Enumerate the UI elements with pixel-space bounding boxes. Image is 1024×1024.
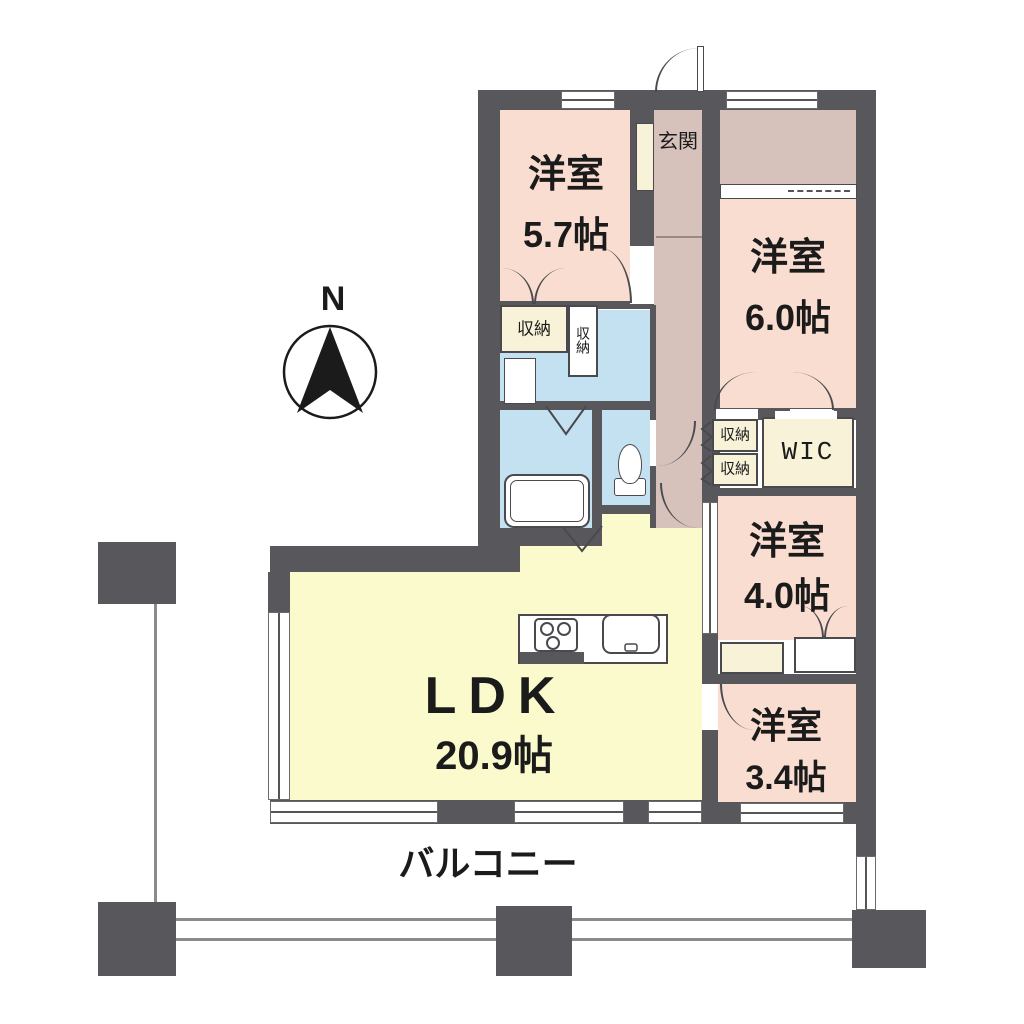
- label-genkan: 玄関: [658, 132, 698, 152]
- closet-bedroom40: [794, 637, 856, 673]
- kitchen-counter-dark: [520, 652, 584, 664]
- label-storage-mid-a: 収納: [720, 428, 750, 443]
- wall-toilet-bottom: [600, 505, 656, 514]
- wall-ldk-top: [270, 546, 500, 572]
- window-north-bedroom57: [561, 91, 615, 109]
- compass-icon: [281, 323, 379, 421]
- balcony-pillar-middle: [496, 906, 572, 976]
- label-storage-mid-b: 収納: [720, 462, 750, 477]
- ldk-hall-notch: [600, 512, 652, 572]
- label-bedroom57-name: 洋室: [528, 156, 604, 194]
- folding-door-icon-hall: [560, 524, 604, 554]
- door-gap-bedroom34: [702, 684, 718, 730]
- entry-side-room: [720, 108, 857, 184]
- strip-pipe-space: [636, 123, 654, 191]
- window-ldk-bottom-3: [648, 801, 702, 823]
- wall-east: [856, 110, 876, 858]
- folding-door-icon-bath: [544, 404, 588, 438]
- label-bedroom34-name: 洋室: [750, 708, 822, 744]
- wall-ldk-left: [268, 572, 290, 612]
- label-bedroom40-name: 洋室: [749, 523, 825, 561]
- label-bedroom60-size: 6.0帖: [745, 300, 831, 336]
- label-storage-hall: 収納: [576, 326, 590, 354]
- vanity-sink-icon: [504, 358, 536, 404]
- hanger-pipe-dashed: [788, 190, 850, 192]
- label-storage-57: 収納: [517, 321, 551, 338]
- window-ldk-bottom-2: [514, 801, 624, 823]
- label-bedroom60-name: 洋室: [750, 239, 826, 277]
- window-ldk-left: [268, 612, 290, 800]
- window-bedroom34-bottom: [740, 803, 844, 823]
- compass-north-label: N: [321, 282, 346, 316]
- label-ldk-size: 20.9帖: [435, 736, 553, 776]
- floor-plan: N 洋室 5.7帖 玄関 洋室 6.0帖 収納 収納 収納 収納 WIC 洋室 …: [0, 0, 1024, 1024]
- toilet-bowl-icon: [618, 444, 642, 484]
- genkan-step-line: [656, 236, 702, 238]
- label-ldk-name: LDK: [425, 670, 568, 722]
- window-north-entry: [726, 91, 818, 109]
- bathtub-icon: [504, 474, 590, 528]
- door-gap-bedroom60: [716, 409, 758, 419]
- window-east-lower: [856, 856, 876, 910]
- door-gap-toilet: [650, 420, 656, 466]
- wic-opening: [775, 411, 837, 419]
- wall-closet-row-bottom: [702, 488, 857, 496]
- label-bedroom34-size: 3.4帖: [745, 761, 826, 795]
- wall-bedroom40-bottom: [718, 674, 857, 684]
- balcony-wall-block-left: [98, 542, 176, 604]
- wall-bath-corridor: [650, 305, 656, 528]
- kitchen-sink-icon: [602, 614, 660, 654]
- balcony-pillar-right: [852, 910, 926, 968]
- balcony-pillar-left: [98, 902, 176, 976]
- door-leaf-entrance: [697, 46, 704, 92]
- accordion-door-icon-b: [700, 455, 714, 486]
- sliding-door-bedroom40: [702, 502, 718, 634]
- label-bedroom40-size: 4.0帖: [744, 578, 830, 614]
- window-ldk-bottom-1: [270, 801, 438, 823]
- accordion-door-icon-a: [700, 421, 714, 452]
- stove-icon: [534, 618, 578, 652]
- label-balcony: バルコニー: [398, 846, 577, 882]
- label-bedroom57-size: 5.7帖: [523, 217, 609, 253]
- label-wic: WIC: [782, 439, 835, 465]
- door-arc-entrance: [655, 48, 699, 92]
- balcony-rail-left: [154, 604, 157, 906]
- door-gap-bedroom57: [630, 246, 654, 304]
- closet-bedroom34: [720, 642, 784, 674]
- wall-west-upper: [478, 110, 500, 572]
